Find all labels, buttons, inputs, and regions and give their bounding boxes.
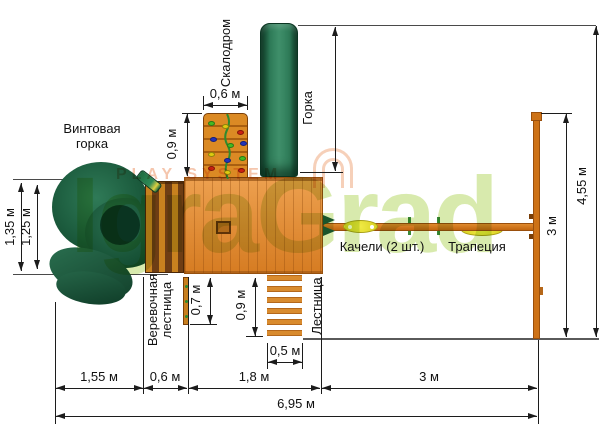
arrow xyxy=(18,183,24,192)
ext xyxy=(247,96,248,110)
ext xyxy=(246,336,263,337)
arrow xyxy=(207,278,213,287)
ext xyxy=(267,343,268,369)
climbing-hold xyxy=(224,170,231,175)
post-notch-lower xyxy=(529,234,533,239)
arrow xyxy=(528,413,537,419)
climbing-hold xyxy=(208,121,215,126)
dim-ladder-width-label: 0,5 м xyxy=(270,344,301,358)
arrow xyxy=(332,27,338,36)
dim-total-length-label: 6,95 м xyxy=(277,397,315,411)
climbing-hold xyxy=(222,124,229,129)
climbing-hold xyxy=(238,168,245,173)
arrow xyxy=(332,162,338,171)
arrow xyxy=(238,102,247,108)
rope-ladder-label: Веревочная лестница xyxy=(146,274,174,346)
post-notch-right xyxy=(540,287,543,295)
main-platform xyxy=(184,177,323,274)
climbing-hold xyxy=(208,166,215,171)
dim-slide-line xyxy=(335,27,336,171)
ext xyxy=(55,302,56,424)
ext xyxy=(302,343,303,369)
arrow xyxy=(311,385,320,391)
arrow xyxy=(178,385,187,391)
arrow xyxy=(34,260,40,269)
dim-total-length-line xyxy=(56,416,537,417)
arrow xyxy=(144,385,153,391)
climbing-hold xyxy=(210,137,217,142)
access-ladder xyxy=(267,275,302,339)
swing-frame-post xyxy=(533,112,540,339)
ext xyxy=(538,340,539,424)
spiral-slide-label-line1: Винтовая xyxy=(63,122,120,136)
beam-bracket-top xyxy=(323,215,335,225)
climbing-hold xyxy=(227,143,234,148)
trapeze-label: Трапеция xyxy=(448,240,506,254)
dim-frame-depth-label: 3 м xyxy=(545,216,559,236)
dim-seg-platform-label: 1,8 м xyxy=(239,370,270,384)
climbing-hold xyxy=(239,156,246,161)
arrow xyxy=(204,102,213,108)
climbing-hold xyxy=(240,141,247,146)
ground-baseline xyxy=(303,338,599,340)
arrow xyxy=(322,385,331,391)
dim-spiral-inner-label: 1,25 м xyxy=(19,208,33,246)
straight-slide xyxy=(260,23,298,177)
arrow xyxy=(563,114,569,123)
dim-seg-spiral-line xyxy=(56,388,143,389)
dim-seg-platform-line xyxy=(189,388,320,389)
arrow xyxy=(563,328,569,337)
ext xyxy=(190,324,217,325)
dim-frame-depth-line xyxy=(566,114,567,337)
arrow xyxy=(207,315,213,324)
ladder-label: Лестница xyxy=(310,277,324,334)
climbing-hold xyxy=(208,152,215,157)
swing1-rope-hole-left xyxy=(348,225,352,229)
arrow xyxy=(593,328,599,337)
dim-spiral-outer-label: 1,35 м xyxy=(3,208,17,246)
arrow xyxy=(189,385,198,391)
dim-seg-swings-line xyxy=(322,388,537,389)
arrow xyxy=(56,385,65,391)
dim-wall-depth-label: 0,9 м xyxy=(165,129,179,160)
playground-plan-canvas: PLAY SYSTEM IgraGrad 1,35 м 1,25 м 0,6 м… xyxy=(0,0,600,437)
ext xyxy=(300,172,343,173)
arrow xyxy=(252,327,258,336)
ext xyxy=(188,277,189,394)
climbing-hold xyxy=(237,130,244,135)
climbing-hold xyxy=(224,158,231,163)
rope-ladder-label-line2: лестница xyxy=(160,274,174,346)
arrow xyxy=(184,114,190,123)
swing1-seat xyxy=(343,220,378,233)
dim-wall-width-label: 0,6 м xyxy=(210,87,241,101)
slide-name-label: Горка xyxy=(301,91,315,125)
dim-seg-swings-label: 3 м xyxy=(419,370,439,384)
arrow xyxy=(293,359,302,365)
beam-bracket-bottom xyxy=(323,226,335,236)
post-notch-upper xyxy=(529,214,533,219)
arrow xyxy=(593,26,599,35)
dim-rope-drop-label: 0,7 м xyxy=(189,285,203,316)
terrace-deck xyxy=(145,181,184,273)
platform-hatch xyxy=(216,221,231,234)
arrow xyxy=(252,278,258,287)
arrow xyxy=(56,413,65,419)
swings-label: Качели (2 шт.) xyxy=(340,240,425,254)
spiral-slide-hole xyxy=(100,205,140,245)
arrow xyxy=(134,385,143,391)
climbing-wall xyxy=(203,113,248,178)
spiral-slide-label-line2: горка xyxy=(76,137,108,151)
arrow xyxy=(528,385,537,391)
arrow xyxy=(18,262,24,271)
dim-total-depth-line xyxy=(596,26,597,337)
dim-seg-spiral-label: 1,55 м xyxy=(80,370,118,384)
dim-spiral-inner-line xyxy=(37,185,38,269)
rope-ladder-label-line1: Веревочная xyxy=(146,274,160,346)
ext xyxy=(143,277,144,394)
arrow xyxy=(34,185,40,194)
arrow xyxy=(184,167,190,176)
climbing-wall-label: Скалодром xyxy=(219,19,233,87)
dim-ladder-run-label: 0,9 м xyxy=(234,290,248,321)
swing1-rope-hole-right xyxy=(370,225,374,229)
dim-seg-rope-label: 0,6 м xyxy=(150,370,181,384)
ext-line-structure-top xyxy=(298,25,596,26)
arrow xyxy=(268,359,277,365)
dim-total-depth-label: 4,55 м xyxy=(575,167,589,205)
